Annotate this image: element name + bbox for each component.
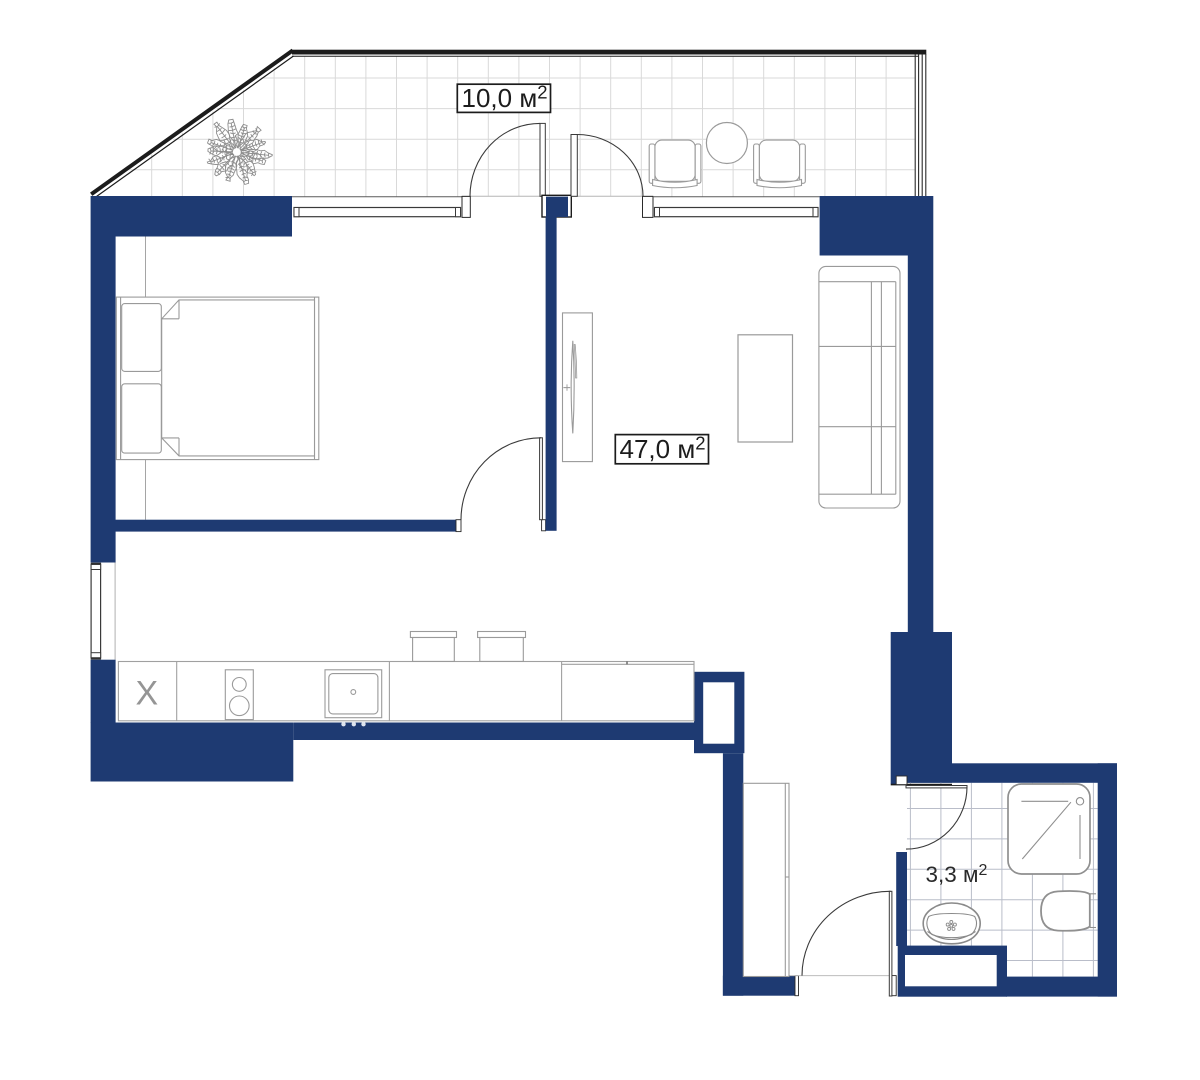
svg-text:3,3 м2: 3,3 м2 (926, 862, 988, 887)
svg-text:X: X (136, 675, 159, 713)
svg-text:47,0 м2: 47,0 м2 (620, 433, 706, 465)
svg-text:10,0 м2: 10,0 м2 (462, 82, 548, 114)
